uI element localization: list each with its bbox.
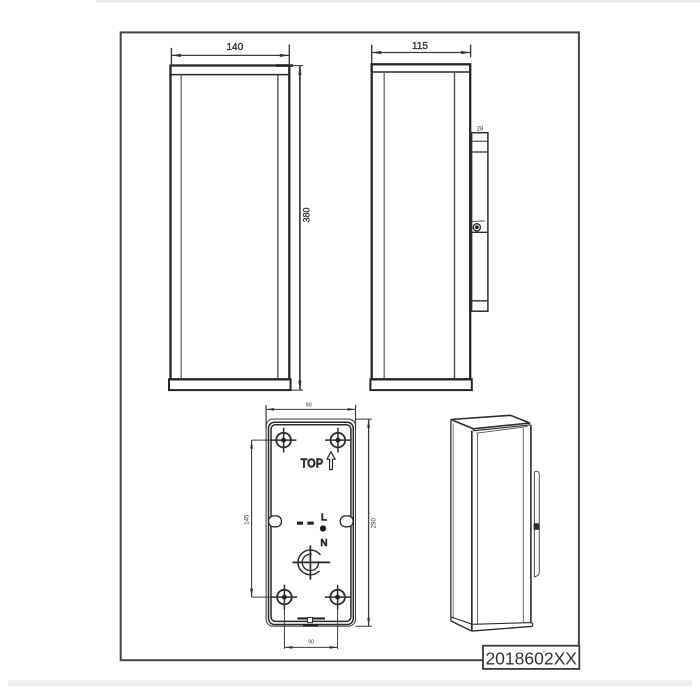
svg-text:2018602XX: 2018602XX (485, 648, 577, 668)
svg-text:90: 90 (306, 402, 312, 408)
svg-text:115: 115 (412, 41, 428, 52)
svg-text:TOP: TOP (301, 456, 324, 470)
svg-text:28: 28 (477, 127, 484, 133)
svg-text:145: 145 (245, 514, 251, 525)
svg-text:N: N (320, 538, 327, 549)
svg-text:90: 90 (308, 640, 314, 646)
svg-text:380: 380 (301, 207, 311, 222)
svg-text:L: L (321, 513, 327, 524)
svg-text:290: 290 (372, 518, 378, 529)
svg-text:140: 140 (226, 42, 243, 53)
